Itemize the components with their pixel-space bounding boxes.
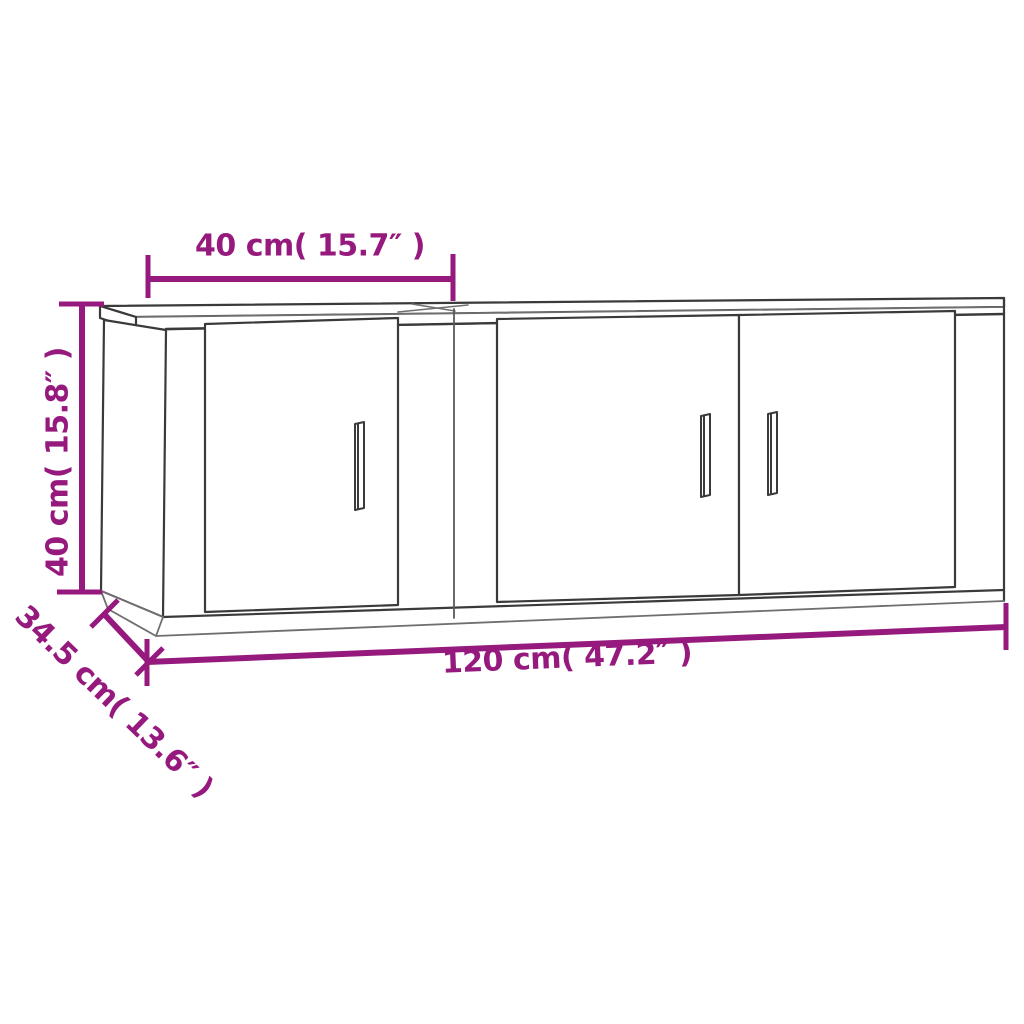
handle-body: [355, 422, 364, 510]
product-dimension-diagram: 40 cm( 15.7″ ) 40 cm( 15.8″ ) 120 cm( 47…: [0, 0, 1024, 1024]
cabinet-line-art: [0, 0, 1024, 1024]
left-cabinet-door: [205, 318, 398, 612]
handle-body: [768, 412, 777, 495]
top-width-label: 40 cm( 15.7″ ): [195, 229, 425, 264]
middle-door-handle: [701, 414, 710, 497]
right-door-handle: [768, 412, 777, 495]
handle-body: [701, 414, 710, 497]
side-height-label: 40 cm( 15.8″ ): [41, 347, 76, 577]
left-door-handle: [355, 422, 364, 510]
left-side-panel: [101, 320, 166, 617]
cabinet-set-drawing: [100, 298, 1004, 636]
